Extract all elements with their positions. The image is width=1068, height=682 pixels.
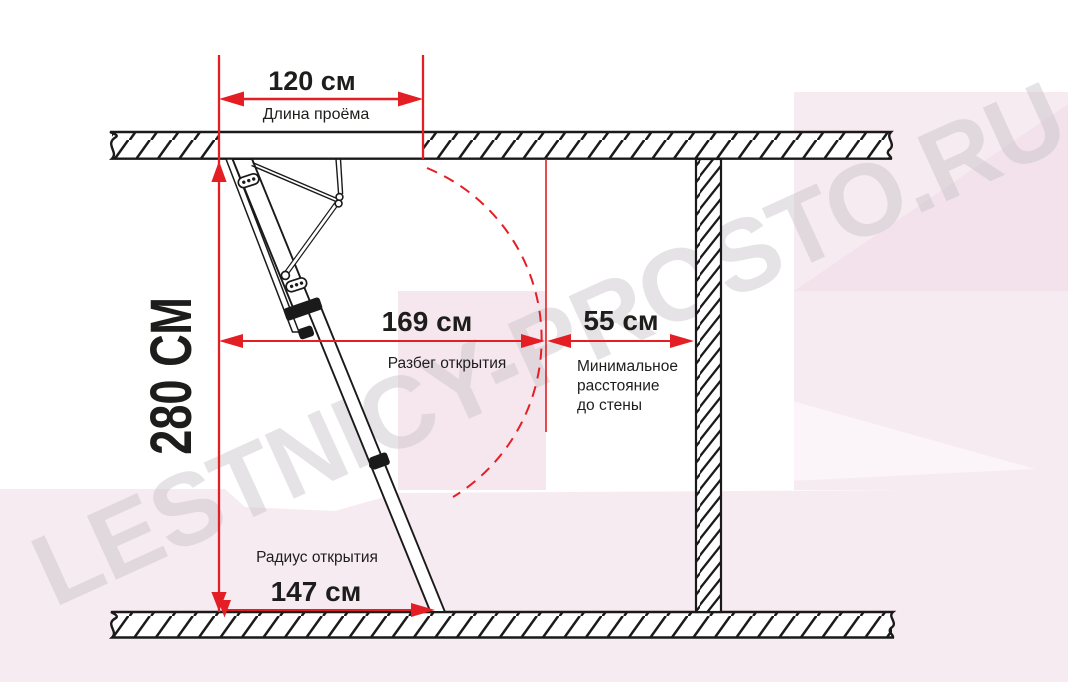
svg-text:Радиус открытия: Радиус открытия	[256, 549, 378, 566]
svg-text:Минимальное: Минимальное	[577, 358, 678, 375]
svg-text:280 СМ: 280 СМ	[140, 297, 205, 455]
svg-text:расстояние: расстояние	[577, 378, 660, 395]
svg-text:до стены: до стены	[577, 397, 642, 414]
svg-text:Разбег открытия: Разбег открытия	[388, 355, 507, 372]
svg-text:147 см: 147 см	[271, 576, 362, 607]
svg-text:Длина проёма: Длина проёма	[263, 106, 370, 123]
svg-text:120 см: 120 см	[268, 66, 356, 96]
svg-text:55 см: 55 см	[583, 305, 658, 336]
svg-text:169 см: 169 см	[382, 306, 473, 337]
